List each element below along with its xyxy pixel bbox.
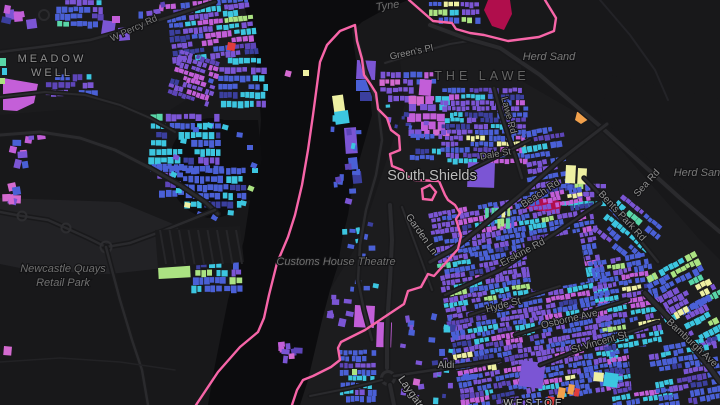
svg-text:WESTOE: WESTOE [503,398,564,405]
svg-text:Retail Park: Retail Park [36,277,90,289]
svg-text:Aldi: Aldi [438,360,455,371]
svg-text:Herd Sand: Herd Sand [523,51,576,63]
svg-text:THE LAWE: THE LAWE [434,69,529,83]
svg-text:Herd Sand: Herd Sand [674,167,720,179]
svg-text:Customs House Theatre: Customs House Theatre [276,256,395,268]
svg-text:MEADOW: MEADOW [18,53,87,65]
svg-text:Newcastle Quays: Newcastle Quays [20,263,106,275]
svg-text:South Shields: South Shields [387,168,476,184]
svg-text:WELL: WELL [31,67,73,79]
